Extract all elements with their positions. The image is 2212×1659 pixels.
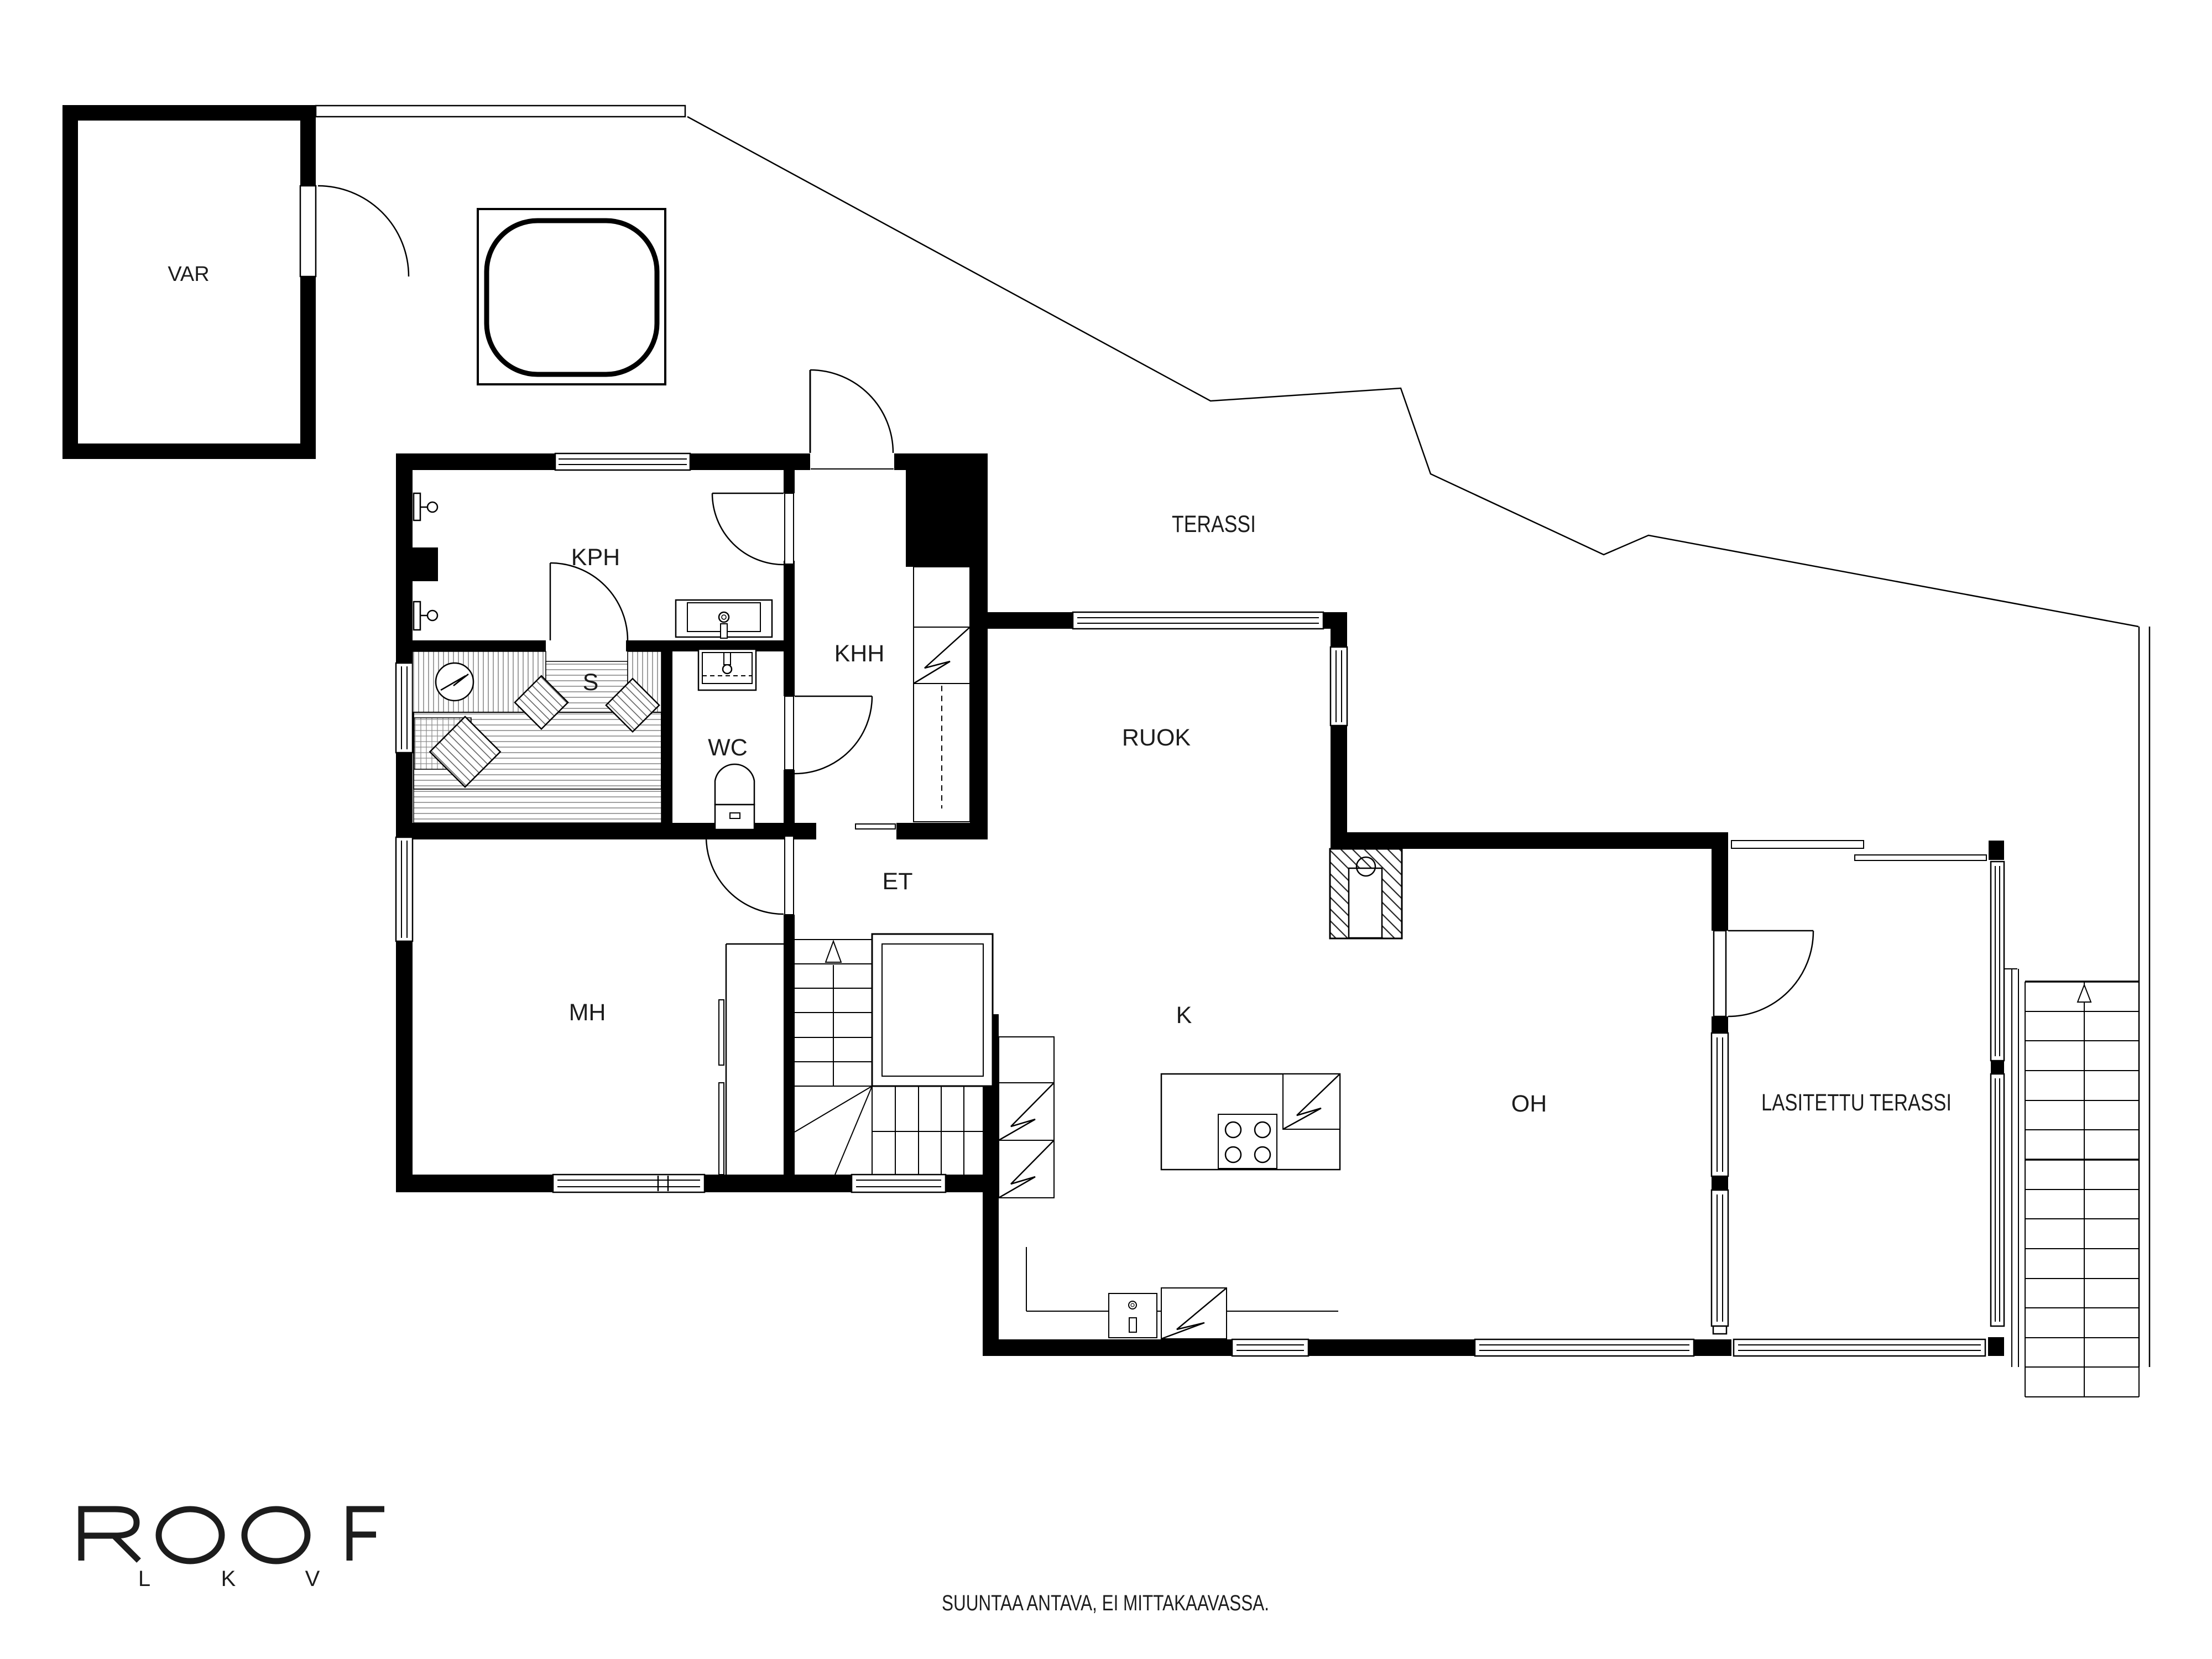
- svg-text:KHH: KHH: [834, 640, 885, 667]
- svg-text:ET: ET: [883, 868, 913, 895]
- svg-text:K: K: [221, 1567, 236, 1591]
- svg-text:L: L: [138, 1567, 150, 1591]
- svg-text:S: S: [583, 669, 599, 696]
- svg-text:K: K: [1176, 1002, 1192, 1029]
- svg-text:RUOK: RUOK: [1122, 724, 1191, 751]
- svg-text:OH: OH: [1511, 1091, 1547, 1117]
- svg-text:TERASSI: TERASSI: [1172, 511, 1256, 538]
- svg-text:SUUNTAA ANTAVA, EI MITTAKAAVAS: SUUNTAA ANTAVA, EI MITTAKAAVASSA.: [942, 1591, 1269, 1615]
- svg-text:MH: MH: [569, 999, 606, 1026]
- svg-text:V: V: [305, 1567, 320, 1591]
- svg-text:KPH: KPH: [571, 544, 620, 571]
- svg-text:LASITETTU TERASSI: LASITETTU TERASSI: [1761, 1089, 1952, 1116]
- svg-text:WC: WC: [708, 734, 748, 761]
- svg-text:VAR: VAR: [168, 263, 209, 286]
